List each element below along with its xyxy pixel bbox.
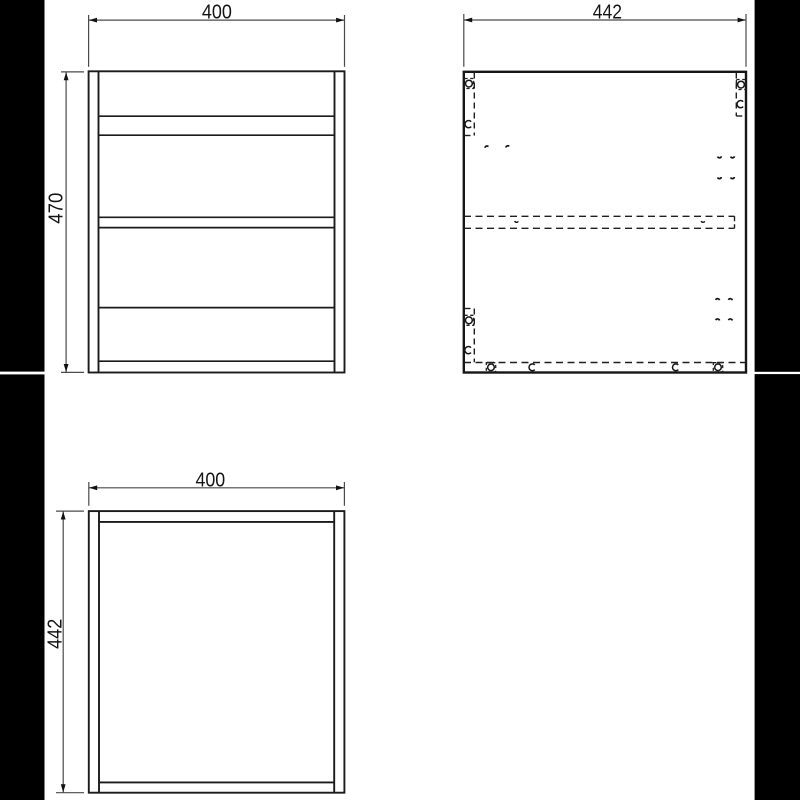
svg-text:400: 400 [195,468,225,491]
svg-text:442: 442 [43,619,66,649]
svg-text:442: 442 [593,1,622,24]
svg-text:400: 400 [202,1,232,24]
svg-text:470: 470 [45,193,68,224]
